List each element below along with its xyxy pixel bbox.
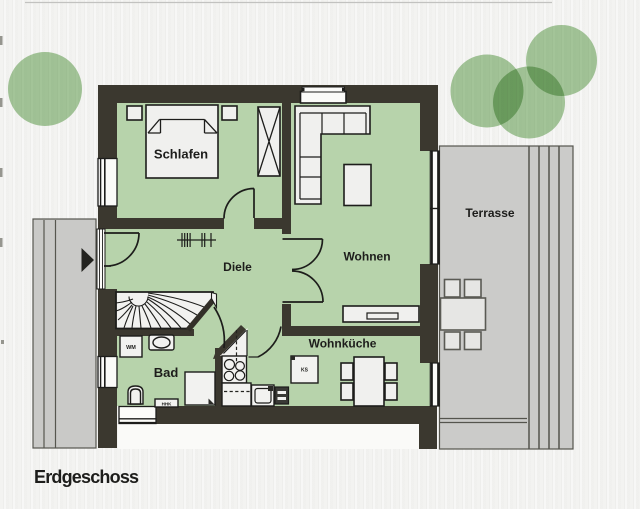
- svg-text:Diele: Diele: [223, 260, 252, 274]
- svg-text:KS: KS: [301, 368, 309, 374]
- svg-text:WM: WM: [126, 345, 136, 351]
- svg-text:Erdgeschoss: Erdgeschoss: [34, 467, 139, 487]
- svg-text:Wohnküche: Wohnküche: [309, 337, 377, 351]
- svg-text:Terrasse: Terrasse: [465, 206, 514, 220]
- svg-text:Wohnen: Wohnen: [343, 250, 390, 264]
- svg-text:Schlafen: Schlafen: [154, 147, 208, 162]
- svg-text:HHK: HHK: [162, 402, 172, 407]
- svg-text:Bad: Bad: [154, 365, 179, 380]
